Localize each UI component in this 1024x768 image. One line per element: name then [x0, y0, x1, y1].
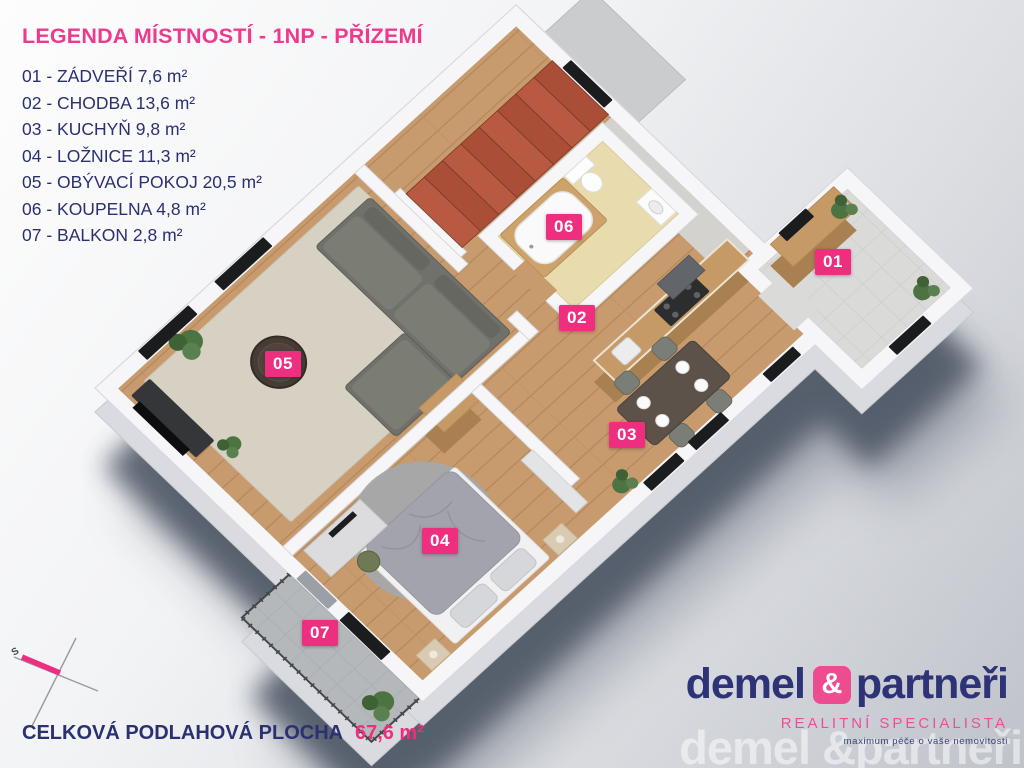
total-area-label: CELKOVÁ PODLAHOVÁ PLOCHA: [22, 722, 342, 744]
total-area-value: 67,6 m²: [355, 722, 424, 744]
compass-north-label: S: [10, 645, 22, 658]
logo-subtitle: REALITNÍ SPECIALISTA: [686, 715, 1008, 732]
brand-logo: demel & partneři REALITNÍ SPECIALISTA ma…: [686, 663, 1008, 747]
total-area: CELKOVÁ PODLAHOVÁ PLOCHA 67,6 m²: [22, 722, 424, 745]
compass: S: [10, 638, 98, 726]
legend-item: 06 - KOUPELNA 4,8 m²: [22, 196, 423, 223]
legend-item: 02 - CHODBA 13,6 m²: [22, 90, 423, 117]
ampersand-icon: &: [813, 666, 851, 704]
legend-item: 05 - OBÝVACÍ POKOJ 20,5 m²: [22, 169, 423, 196]
logo-word-right: partneři: [856, 663, 1008, 706]
legend-item: 04 - LOŽNICE 11,3 m²: [22, 143, 423, 170]
room-badge-06: 06: [546, 214, 582, 240]
room-badge-07: 07: [302, 620, 338, 646]
room-badge-02: 02: [559, 305, 595, 331]
logo-word-left: demel: [686, 663, 805, 706]
room-badge-04: 04: [422, 528, 458, 554]
logo-tagline: maximum péče o vaše nemovitosti: [686, 736, 1008, 747]
floorplan-scene: S LEGENDA MÍSTNOSTÍ - 1NP - PŘÍZEMÍ 01 -…: [0, 0, 1024, 768]
legend-item: 01 - ZÁDVEŘÍ 7,6 m²: [22, 63, 423, 90]
legend-item: 03 - KUCHYŇ 9,8 m²: [22, 116, 423, 143]
legend-item: 07 - BALKON 2,8 m²: [22, 222, 423, 249]
legend-title: LEGENDA MÍSTNOSTÍ - 1NP - PŘÍZEMÍ: [22, 24, 423, 49]
room-badge-03: 03: [609, 422, 645, 448]
room-badge-05: 05: [265, 351, 301, 377]
room-badge-01: 01: [815, 249, 851, 275]
legend: LEGENDA MÍSTNOSTÍ - 1NP - PŘÍZEMÍ 01 - Z…: [22, 24, 423, 249]
